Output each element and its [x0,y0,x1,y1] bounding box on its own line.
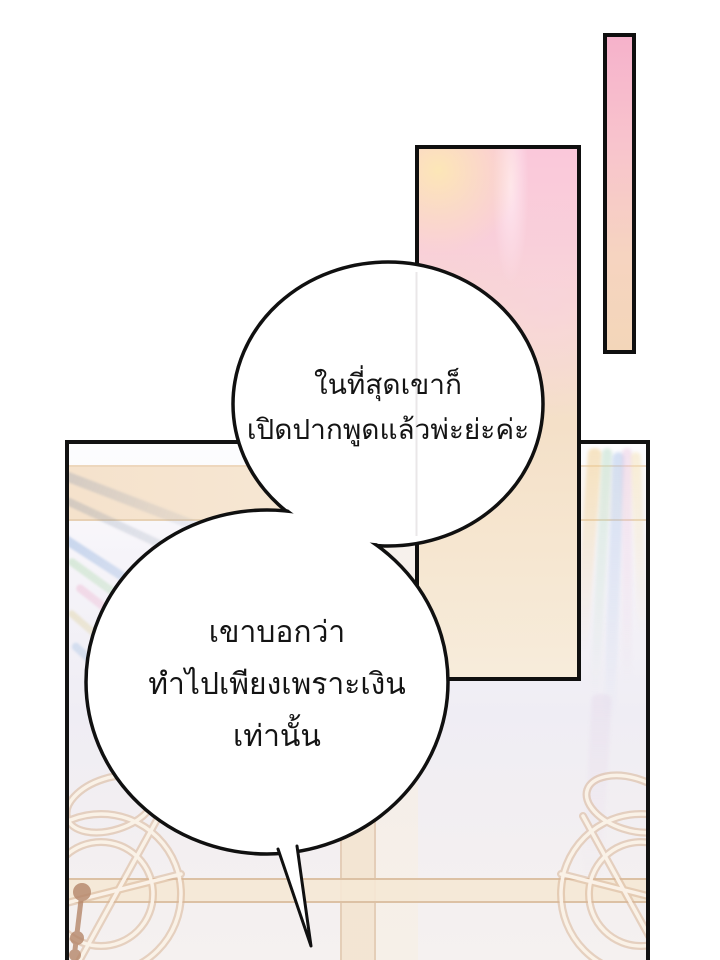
wheel-ornament-left [69,765,181,960]
comic-page: ในที่สุดเขาก็ เปิดปากพูดแล้วพ่ะย่ะค่ะ เข… [0,0,720,960]
speech-text-top: ในที่สุดเขาก็ เปิดปากพูดแล้วพ่ะย่ะค่ะ [213,362,563,452]
speech-text-bottom: เขาบอกว่า ทำไปเพียงเพราะเงิน เท่านั้น [102,607,452,763]
pink-accent-strip [603,33,636,354]
wheel-ornament-right [561,765,650,960]
speech-line: ทำไปเพียงเพราะเงิน [102,659,452,711]
speech-line: เท่านั้น [102,711,452,763]
speech-line: ในที่สุดเขาก็ [213,362,563,407]
speech-line: เขาบอกว่า [102,607,452,659]
speech-line: เปิดปากพูดแล้วพ่ะย่ะค่ะ [213,407,563,452]
